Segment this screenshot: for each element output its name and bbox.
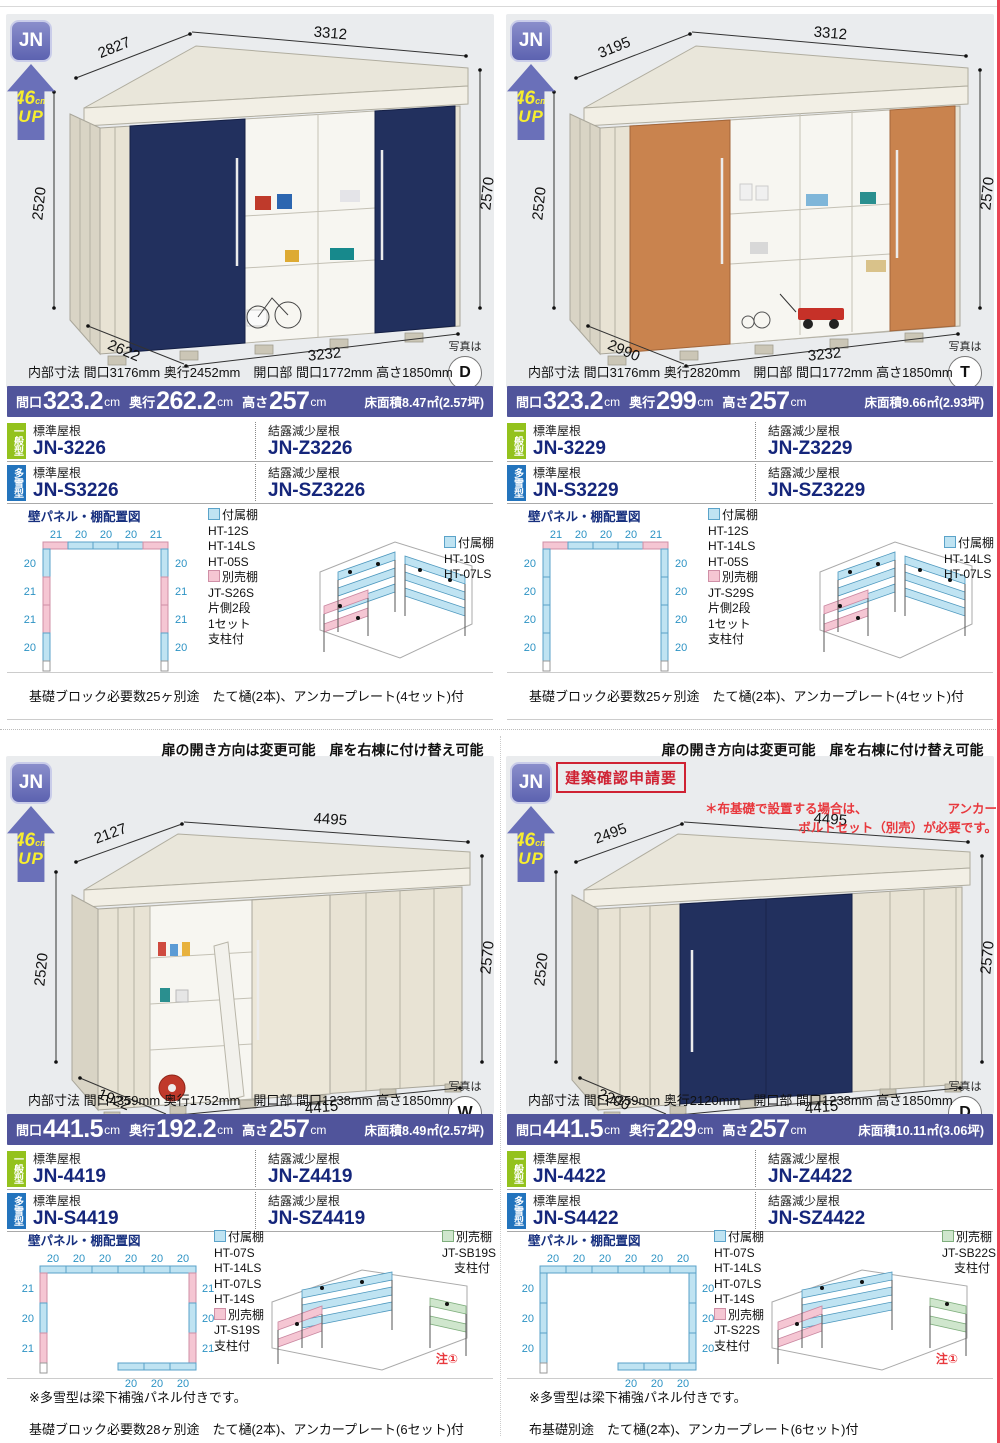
svg-text:20: 20 [522,1343,534,1355]
shed-illustration: 2127 4495 2520 2570 1922 4415 [0,800,500,1130]
optional-swatch-icon [214,1308,226,1320]
shelf-model: HT-14S [214,1292,264,1308]
attached-swatch-icon [944,536,956,548]
spec-depth-label: 奥行 [129,392,155,411]
model-std: 標準屋根JN-S3226 [33,464,255,501]
roof-label: 結露減少屋根 [268,464,493,481]
wall-panel-diagram: 壁パネル・棚配置図 21 20 20 20 21 20 20 20 20 20 [510,506,720,683]
model-number: JN-SZ3226 [268,481,493,501]
shelves-optional [324,590,368,632]
type-badge-general: 一般型 [7,1151,26,1187]
shed-illustration: 2495 4495 2520 2570 2290 4415 [500,800,1000,1130]
attached-swatch-icon [208,508,220,520]
svg-text:20: 20 [625,529,637,541]
foundation-note: 基礎ブロック必要数28ヶ別途 たて樋(2本)、アンカープレート(6セット)付 [29,1419,471,1438]
spec-floor-area: 床面積9.66㎡(2.93坪) [865,392,984,411]
spec-bar: 間口323.2cm 奥行299cm 高さ257cm 床面積9.66㎡(2.93坪… [507,386,993,417]
shelf-model: HT-14LS [214,1261,264,1277]
attached-title: 付属棚 [208,508,258,524]
foundation-note: 布基礎別途 たて樋(2本)、アンカープレート(6セット)付 [529,1419,971,1438]
model-std: 標準屋根JN-3226 [33,422,255,459]
photo-label: 写真は [940,338,990,354]
svg-text:20: 20 [599,1253,611,1265]
svg-text:20: 20 [547,1253,559,1265]
spec-bar: 間口323.2cm 奥行262.2cm 高さ257cm 床面積8.47㎡(2.5… [7,386,493,417]
top-divider [0,6,1000,7]
product-card-jn3226: JN 46cmUP [0,8,500,729]
svg-text:20: 20 [675,614,687,626]
svg-text:21: 21 [175,614,187,626]
notes-block: ※多雪型は梁下補強パネル付きです。 布基礎別途 たて樋(2本)、アンカープレート… [507,1378,993,1443]
shelves-attached [802,1272,892,1328]
shed-interior [150,900,252,1106]
shelf-legend-right: 別売棚 JT-SB22S 支柱付 [942,1230,996,1277]
svg-text:21: 21 [22,1343,34,1355]
shelf-model: HT-05S [708,555,758,571]
svg-text:20: 20 [524,642,536,654]
panel-segments [40,1266,196,1373]
svg-text:20: 20 [47,1253,59,1265]
snow-type-note: ※多雪型は梁下補強パネル付きです。 [529,1387,971,1406]
model-table: 一般型 標準屋根JN-4422 結露減少屋根JN-Z4422 多雪型 標準屋根J… [507,1148,993,1232]
dim-height-right: 2570 [477,940,497,975]
model-number: JN-Z3226 [268,439,493,459]
type-badge-general: 一般型 [507,423,526,459]
photo-letter: T [948,356,982,390]
shelf-model: HT-07LS [944,567,994,583]
svg-text:20: 20 [522,1283,534,1295]
spec-bar: 間口441.5cm 奥行229cm 高さ257cm 床面積10.11㎡(3.06… [507,1114,993,1145]
wall-diagram-title: 壁パネル・棚配置図 [528,506,720,525]
shelf-model: HT-14LS [944,552,994,568]
shelf-note: 片側2段 [708,601,758,617]
shelf-legend-right: 付属棚 HT-10S HT-07LS [444,536,494,583]
shelf-legend: 付属棚 HT-12S HT-14LS HT-05S 別売棚 JT-S29S 片側… [708,508,996,674]
spec-width-unit: cm [104,395,120,409]
door-direction-note: 扉の開き方向は変更可能 扉を右棟に付け替え可能 [150,740,495,760]
series-badge: JN [510,762,552,804]
shelf-model: JT-S29S [708,586,758,602]
shelf-note: 支柱付 [942,1261,996,1277]
model-number: JN-Z4419 [268,1167,493,1187]
model-row-snow: 多雪型 標準屋根JN-S3226 結露減少屋根JN-SZ3226 [7,462,493,504]
series-badge: JN [10,20,52,62]
anchor-bolt-note: ＊布基礎で設置する場合は、アンカー ボルトセット（別売）が必要です。 [705,798,997,836]
attached-title: 付属棚 [944,536,994,552]
optional-swatch-icon [942,1230,954,1242]
model-number: JN-S4422 [533,1209,755,1229]
attached-title: 付属棚 [444,536,494,552]
attached-title: 付属棚 [708,508,758,524]
spec-height-value: 257 [269,387,309,416]
shelf-model: HT-14LS [208,539,258,555]
svg-text:20: 20 [524,586,536,598]
svg-text:20: 20 [24,642,36,654]
model-number: JN-Z3229 [768,439,993,459]
attached-title: 付属棚 [214,1230,264,1246]
shelf-model: HT-12S [708,524,758,540]
svg-text:20: 20 [22,1313,34,1325]
shelf-model: JT-S22S [714,1323,764,1339]
type-badge-snow: 多雪型 [7,465,26,501]
dim-height-right: 2570 [977,940,997,975]
spec-floor-area: 床面積10.11㎡(3.06坪) [858,1120,984,1139]
attached-title: 付属棚 [714,1230,764,1246]
svg-text:20: 20 [175,642,187,654]
shelf-model: HT-07S [214,1246,264,1262]
shelf-model: HT-14S [714,1292,764,1308]
optional-swatch-icon [708,570,720,582]
dim-height-right: 2570 [477,176,497,211]
model-row-general: 一般型 標準屋根JN-3229 結露減少屋根JN-Z3229 [507,420,993,462]
catalog-page: JN 46cmUP [0,0,1000,1443]
wall-diagram: 21 20 20 20 21 20 20 20 20 20 20 20 20 [510,526,710,678]
shed-interior [730,110,890,344]
shed-doors [252,895,330,1099]
series-badge: JN [10,762,52,804]
shed-illustration: 2827 3312 2520 2570 2622 3232 [0,8,500,388]
svg-text:20: 20 [675,586,687,598]
optional-title: 別売棚 [208,570,258,586]
shelf-note: 片側2段 [208,601,258,617]
wall-panel-diagram: 壁パネル・棚配置図 21 20 20 20 21 20 21 21 20 20 [10,506,220,683]
model-row-snow: 多雪型 標準屋根JN-S4419 結露減少屋根JN-SZ4419 [7,1190,493,1232]
panel-numbers-sides: 21 20 21 21 20 21 20 20 20 [22,1283,215,1390]
spec-height-unit: cm [310,395,326,409]
foundation-note: 基礎ブロック必要数25ヶ別途 たて樋(2本)、アンカープレート(4セット)付 [507,672,993,720]
svg-text:21: 21 [650,529,662,541]
spec-floor-area: 床面積8.47㎡(2.57坪) [365,392,484,411]
svg-text:21: 21 [175,586,187,598]
model-number: JN-S3229 [533,481,755,501]
type-badge-snow: 多雪型 [507,1193,526,1229]
shelf-model: HT-14LS [714,1261,764,1277]
dim-height-left: 2520 [531,952,551,987]
svg-text:20: 20 [522,1313,534,1325]
wall-diagram: 21 20 20 20 21 20 21 21 20 20 21 21 20 [10,526,210,678]
attached-swatch-icon [214,1230,226,1242]
foundation-note: 基礎ブロック必要数25ヶ別途 たて樋(2本)、アンカープレート(4セット)付 [7,672,493,720]
shelf-legend: 付属棚 HT-12S HT-14LS HT-05S 別売棚 JT-S26S 片側… [208,508,496,674]
optional-title: 別売棚 [214,1308,264,1324]
svg-text:21: 21 [550,529,562,541]
model-dew: 結露減少屋根JN-SZ3226 [255,464,493,501]
shelf-model: JT-SB22S [942,1246,996,1262]
shelf-model: HT-14LS [708,539,758,555]
panel-numbers-top: 20 20 20 20 20 20 [547,1253,689,1265]
svg-text:20: 20 [125,1253,137,1265]
svg-text:20: 20 [24,558,36,570]
svg-text:20: 20 [524,614,536,626]
svg-text:20: 20 [702,1343,714,1355]
shelf-note: 支柱付 [708,632,758,648]
shelf-note: 支柱付 [208,632,258,648]
type-badge-general: 一般型 [7,423,26,459]
roof-label: 標準屋根 [33,422,255,439]
shelf-model: JT-S26S [208,586,258,602]
roof-label: 標準屋根 [33,464,255,481]
optional-swatch-icon [208,570,220,582]
spec-depth-value: 262.2 [156,387,216,416]
svg-text:20: 20 [73,1253,85,1265]
svg-text:20: 20 [651,1253,663,1265]
model-number: JN-4422 [533,1167,755,1187]
shelf-model: HT-07S [714,1246,764,1262]
dim-roof-width: 4495 [313,810,347,829]
dim-height-left: 2520 [31,952,51,987]
inner-dimensions: 内部寸法 間口4359mm 奥行1752mm 開口部 間口1238mm 高さ18… [28,1090,453,1109]
dim-height-left: 2520 [529,186,549,221]
model-number: JN-SZ3229 [768,481,993,501]
svg-text:21: 21 [202,1283,214,1295]
wall-diagram-title: 壁パネル・棚配置図 [28,1230,220,1249]
shed-doors [680,894,852,1104]
optional-swatch-icon [442,1230,454,1242]
model-row-general: 一般型 標準屋根JN-4419 結露減少屋根JN-Z4419 [7,1148,493,1190]
svg-text:21: 21 [202,1343,214,1355]
svg-text:20: 20 [125,529,137,541]
shelf-model: JT-SB19S [442,1246,496,1262]
inner-dimensions: 内部寸法 間口3176mm 奥行2452mm 開口部 間口1772mm 高さ18… [28,362,453,381]
attached-swatch-icon [444,536,456,548]
dim-roof-width: 3312 [313,24,348,44]
shelf-note: 支柱付 [714,1339,764,1355]
model-table: 一般型 標準屋根JN-3229 結露減少屋根JN-Z3229 多雪型 標準屋根J… [507,420,993,504]
type-badge-snow: 多雪型 [7,1193,26,1229]
svg-text:20: 20 [573,1253,585,1265]
shelf-note: 支柱付 [442,1261,496,1277]
shed-illustration: 3195 3312 2520 2570 2990 3232 [500,8,1000,388]
model-number: JN-SZ4419 [268,1209,493,1229]
svg-text:20: 20 [524,558,536,570]
model-number: JN-4419 [33,1167,255,1187]
series-badge: JN [510,20,552,62]
product-card-jn3229: JN 46cmUP [500,8,1000,729]
shelf-note: 1セット [208,617,258,633]
model-row-general: 一般型 標準屋根JN-3226 結露減少屋根JN-Z3226 [7,420,493,462]
model-dew: 結露減少屋根JN-Z3226 [255,422,493,459]
panel-segments [543,542,668,671]
optional-swatch-icon [714,1308,726,1320]
attached-swatch-icon [714,1230,726,1242]
dim-roof-depth: 2495 [592,820,629,847]
optional-title: 別売棚 [942,1230,996,1246]
photo-label: 写真は [440,338,490,354]
spec-depth-unit: cm [217,395,233,409]
series-label: JN [19,772,43,794]
shelf-model: HT-12S [208,524,258,540]
svg-text:20: 20 [202,1313,214,1325]
model-number: JN-SZ4422 [768,1209,993,1229]
panel-segments [540,1266,696,1373]
model-number: JN-3229 [533,439,755,459]
photo-letter: D [448,356,482,390]
shelves-optional [824,590,868,632]
spec-floor-area: 床面積8.49㎡(2.57坪) [365,1120,484,1139]
svg-text:20: 20 [175,558,187,570]
panel-numbers-sides: 20 20 20 20 20 20 20 20 20 [522,1283,715,1390]
snow-type-note: ※多雪型は梁下補強パネル付きです。 [29,1387,471,1406]
attached-swatch-icon [708,508,720,520]
model-number: JN-S4419 [33,1209,255,1229]
svg-text:21: 21 [24,586,36,598]
shelf-model: HT-10S [444,552,494,568]
svg-text:20: 20 [151,1253,163,1265]
model-row-snow: 多雪型 標準屋根JN-S4422 結露減少屋根JN-SZ4422 [507,1190,993,1232]
svg-text:20: 20 [177,1253,189,1265]
inner-dimensions: 内部寸法 間口4359mm 奥行2120mm 開口部 間口1238mm 高さ18… [528,1090,953,1109]
svg-text:20: 20 [675,642,687,654]
svg-text:20: 20 [575,529,587,541]
svg-text:20: 20 [702,1283,714,1295]
shelf-model: JT-S19S [214,1323,264,1339]
roof-label: 結露減少屋根 [268,422,493,439]
panel-numbers-top: 21 20 20 20 21 [550,529,662,541]
svg-text:21: 21 [50,529,62,541]
shed-interior [245,111,375,343]
wall-diagram-title: 壁パネル・棚配置図 [28,506,220,525]
shelf-model: HT-05S [208,555,258,571]
inner-dimensions: 内部寸法 間口3176mm 奥行2820mm 開口部 間口1772mm 高さ18… [528,362,953,381]
series-label: JN [519,30,543,52]
notes-block: ※多雪型は梁下補強パネル付きです。 基礎ブロック必要数28ヶ別途 たて樋(2本)… [7,1378,493,1443]
svg-text:20: 20 [702,1313,714,1325]
series-label: JN [519,772,543,794]
model-row-snow: 多雪型 標準屋根JN-S3229 結露減少屋根JN-SZ3229 [507,462,993,504]
svg-text:20: 20 [100,529,112,541]
wall-diagram-title: 壁パネル・棚配置図 [528,1230,720,1249]
shelf-legend-right: 別売棚 JT-SB19S 支柱付 [442,1230,496,1277]
product-card-jn4419: 扉の開き方向は変更可能 扉を右棟に付け替え可能 JN 46cmUP [0,722,500,1443]
type-badge-snow: 多雪型 [507,465,526,501]
panel-segments [43,542,168,671]
shelf-model: HT-07LS [444,567,494,583]
optional-title: 別売棚 [708,570,758,586]
footnote-mark: 注① [936,1350,958,1367]
svg-text:21: 21 [24,614,36,626]
product-card-jn4422: 扉の開き方向は変更可能 扉を右棟に付け替え可能 JN 建築確認申請要 ＊布基礎で… [500,722,1000,1443]
model-number: JN-S3226 [33,481,255,501]
svg-text:21: 21 [22,1283,34,1295]
model-row-general: 一般型 標準屋根JN-4422 結露減少屋根JN-Z4422 [507,1148,993,1190]
shelf-legend-left: 付属棚 HT-07S HT-14LS HT-07LS HT-14S 別売棚 JT… [714,1230,764,1354]
type-badge-general: 一般型 [507,1151,526,1187]
dim-height-right: 2570 [977,176,997,211]
svg-text:21: 21 [150,529,162,541]
dim-height-left: 2520 [29,186,49,221]
optional-title: 別売棚 [442,1230,496,1246]
building-approval-badge: 建築確認申請要 [556,762,686,793]
dim-roof-width: 3312 [813,24,848,44]
spec-height-label: 高さ [242,392,268,411]
svg-text:20: 20 [625,1253,637,1265]
svg-text:20: 20 [75,529,87,541]
model-table: 一般型 標準屋根JN-4419 結露減少屋根JN-Z4419 多雪型 標準屋根J… [7,1148,493,1232]
spec-width-value: 323.2 [43,387,103,416]
shelf-note: 支柱付 [214,1339,264,1355]
svg-text:20: 20 [677,1253,689,1265]
panel-numbers-top: 21 20 20 20 21 [50,529,162,541]
optional-title: 別売棚 [714,1308,764,1324]
model-number: JN-Z4422 [768,1167,993,1187]
shelf-legend-left: 付属棚 HT-12S HT-14LS HT-05S 別売棚 JT-S29S 片側… [708,508,758,648]
footnote-mark: 注① [436,1350,458,1367]
shelf-legend-left: 付属棚 HT-07S HT-14LS HT-07LS HT-14S 別売棚 JT… [214,1230,264,1354]
dim-roof-depth: 2127 [92,820,129,847]
shelf-model: HT-07LS [214,1277,264,1293]
door-direction-note: 扉の開き方向は変更可能 扉を右棟に付け替え可能 [650,740,995,760]
model-number: JN-3226 [33,439,255,459]
svg-text:20: 20 [600,529,612,541]
svg-text:20: 20 [99,1253,111,1265]
panel-numbers-top: 20 20 20 20 20 20 [47,1253,189,1265]
model-table: 一般型 標準屋根JN-3226 結露減少屋根JN-Z3226 多雪型 標準屋根J… [7,420,493,504]
spec-width-label: 間口 [16,392,42,411]
series-label: JN [19,30,43,52]
svg-text:20: 20 [675,558,687,570]
shelf-model: HT-07LS [714,1277,764,1293]
shelf-note: 1セット [708,617,758,633]
shelves-attached [302,1272,392,1328]
shelf-legend-right: 付属棚 HT-14LS HT-07LS [944,536,994,583]
shelf-legend-left: 付属棚 HT-12S HT-14LS HT-05S 別売棚 JT-S26S 片側… [208,508,258,648]
spec-bar: 間口441.5cm 奥行192.2cm 高さ257cm 床面積8.49㎡(2.5… [7,1114,493,1145]
